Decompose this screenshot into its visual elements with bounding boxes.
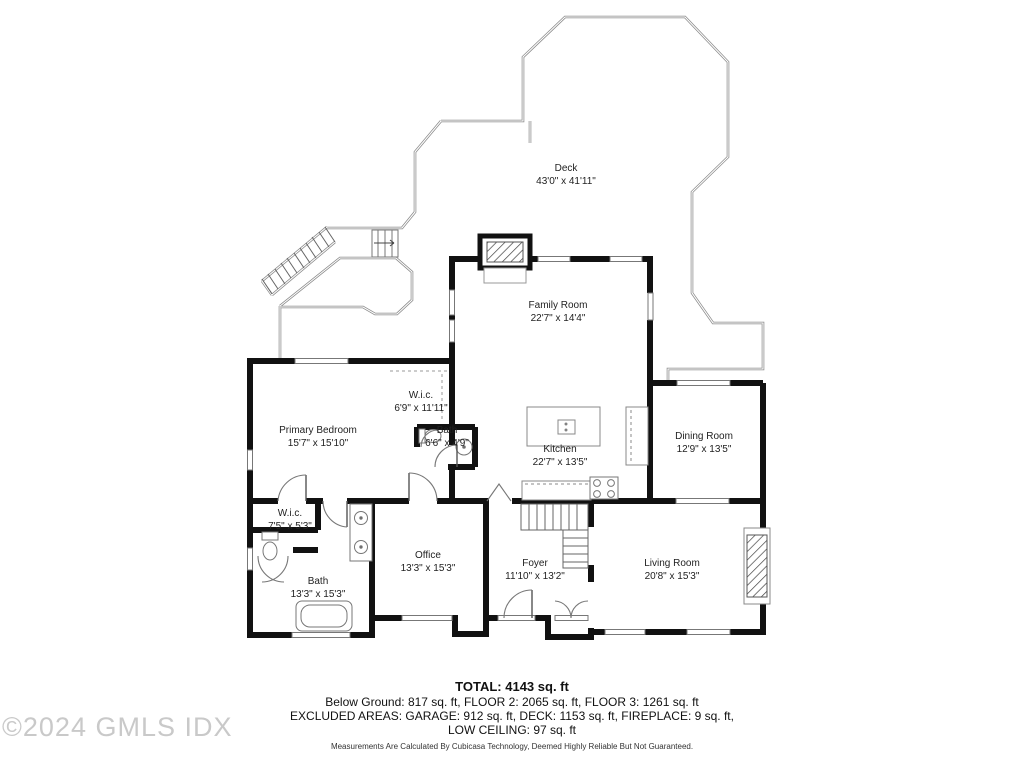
total-area: TOTAL: 4143 sq. ft: [0, 679, 1024, 694]
room-label-bath-lower: Bath 13'3" x 15'3": [238, 575, 398, 601]
deck-railing: [262, 17, 763, 380]
deck-stairs: [262, 227, 335, 294]
room-label-wic-lower: W.i.c. 7'5" x 5'3": [210, 507, 370, 533]
room-label-living-room: Living Room 20'8" x 15'3": [592, 557, 752, 583]
room-label-family-room: Family Room 22'7" x 14'4": [478, 299, 638, 325]
floor-areas: Below Ground: 817 sq. ft, FLOOR 2: 2065 …: [0, 695, 1024, 709]
kitchen-island: [527, 407, 600, 446]
bathtub: [296, 601, 352, 631]
toilet-lower: [262, 532, 278, 560]
room-label-kitchen: Kitchen 22'7" x 13'5": [480, 443, 640, 469]
room-label-foyer: Foyer 11'10" x 13'2": [455, 557, 615, 583]
room-label-dining-room: Dining Room 12'9" x 13'5": [624, 430, 784, 456]
room-label-deck: Deck 43'0" x 41'11": [486, 162, 646, 188]
family-room-fireplace: [480, 236, 530, 283]
watermark: ©2024 GMLS IDX: [2, 712, 233, 743]
stove: [590, 477, 618, 499]
disclaimer: Measurements Are Calculated By Cubicasa …: [0, 742, 1024, 751]
floorplan-drawing: [0, 0, 1024, 768]
floorplan-page: Deck 43'0" x 41'11" Family Room 22'7" x …: [0, 0, 1024, 768]
deck-small-stairs: [372, 230, 398, 257]
room-label-wic-upper: W.i.c. 6'9" x 11'11": [341, 389, 501, 415]
room-label-primary-bedroom: Primary Bedroom 15'7" x 15'10": [238, 424, 398, 450]
